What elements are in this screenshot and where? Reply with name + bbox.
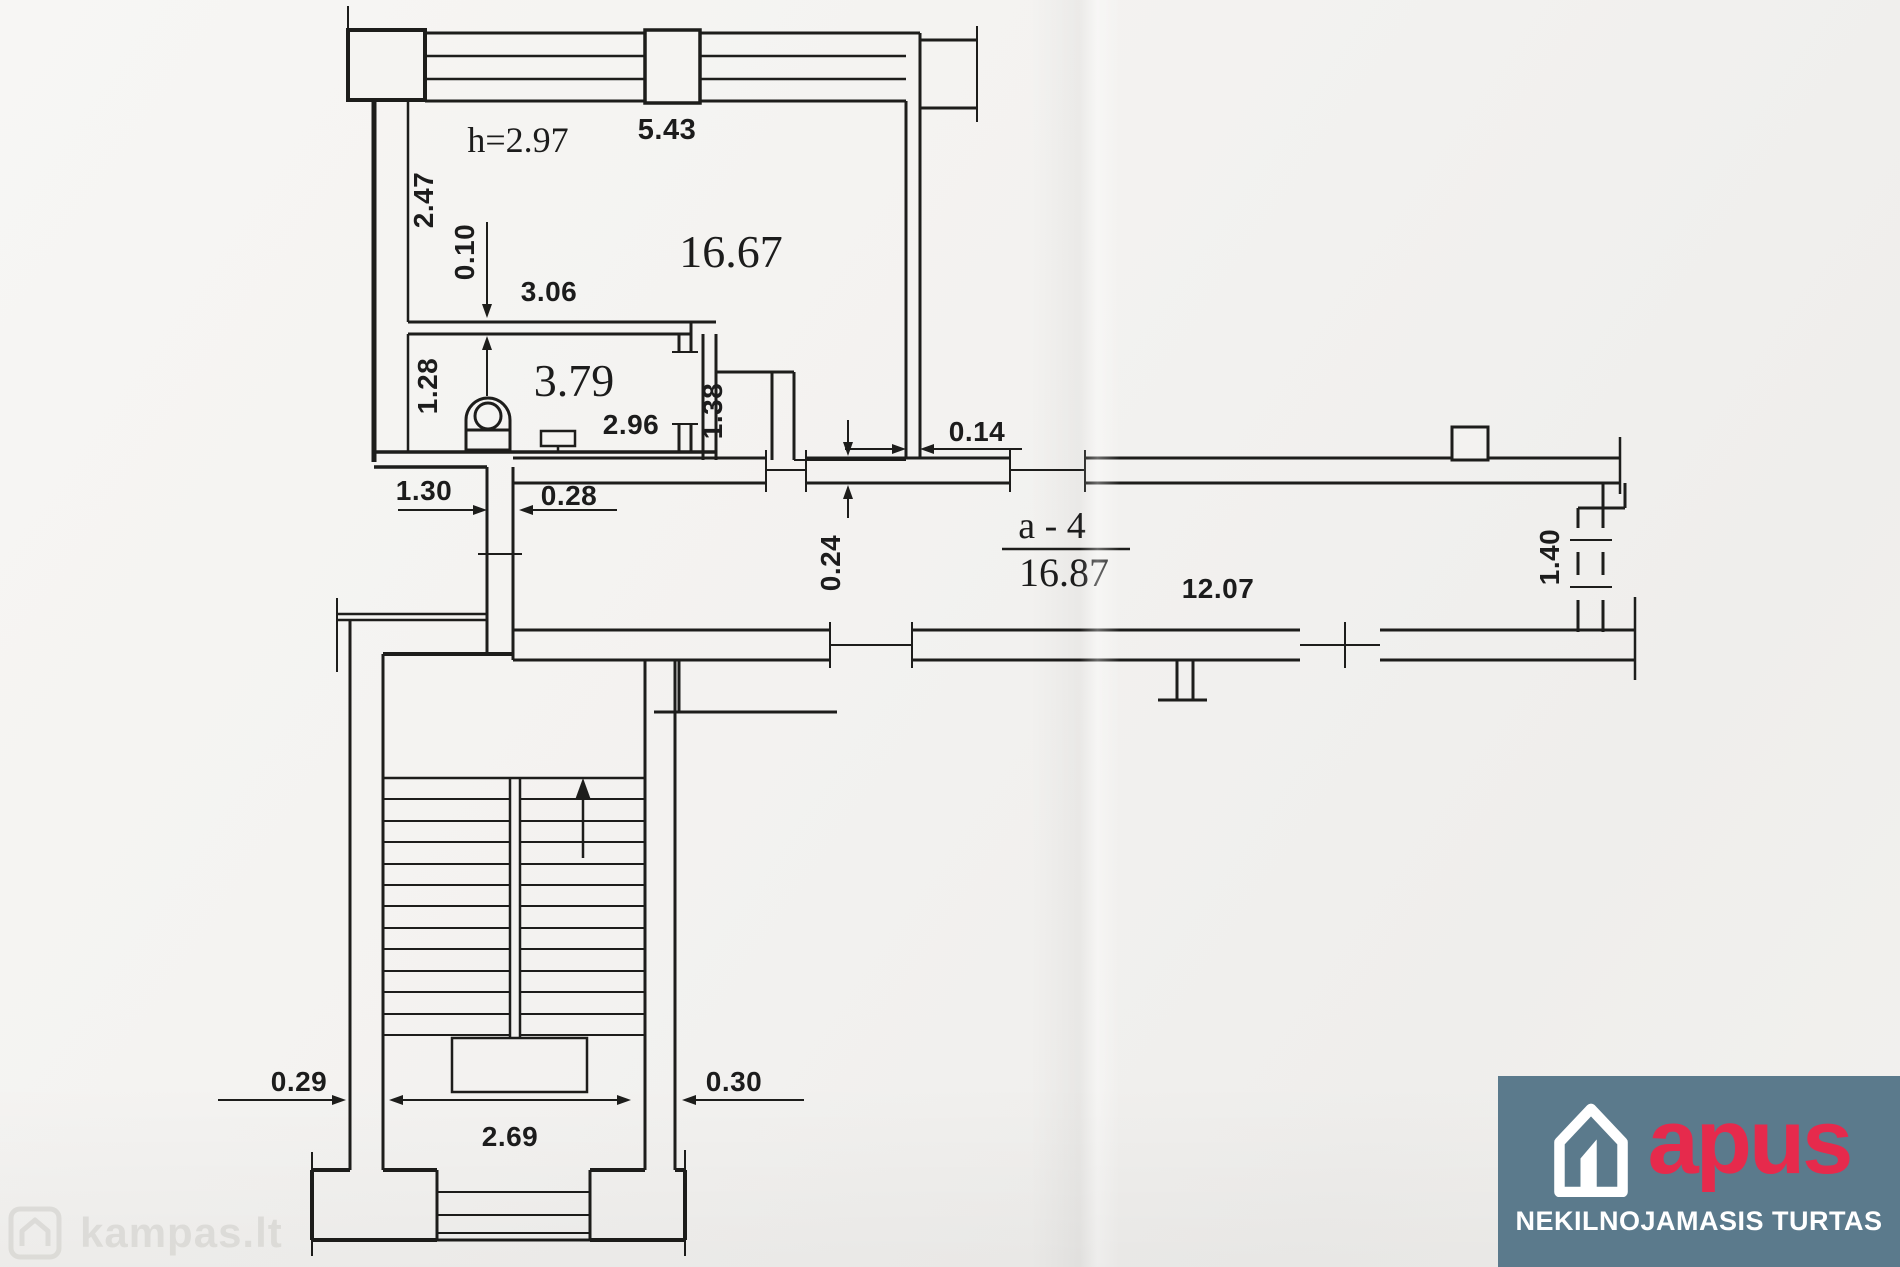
dim-wall-thickness-right: 0.14 <box>949 416 1006 447</box>
dim-stair-wall-left: 0.29 <box>271 1066 328 1097</box>
dim-room-left: 2.47 <box>408 172 439 229</box>
wc-room-area: 3.79 <box>534 355 615 406</box>
dim-corridor-end-door: 1.40 <box>1534 529 1565 586</box>
corridor-bottom-wall <box>513 597 1635 712</box>
entrance-vestibule <box>312 1150 685 1256</box>
stairs <box>383 778 645 1092</box>
logo-tagline: NEKILNOJAMASIS TURTAS <box>1515 1206 1882 1237</box>
sink-icon <box>541 431 575 452</box>
house-icon <box>1548 1099 1634 1197</box>
main-room-area: 16.67 <box>679 226 783 277</box>
corridor-right-end <box>1570 483 1625 632</box>
toilet-icon <box>466 398 510 450</box>
dim-stair-inner-width: 2.69 <box>482 1121 539 1152</box>
dim-stair-wall-right: 0.30 <box>706 1066 763 1097</box>
dim-corridor-length: 12.07 <box>1182 573 1255 604</box>
kampas-logo-icon <box>8 1206 62 1260</box>
wall-notch <box>1452 427 1488 460</box>
watermark: kampas.lt <box>8 1206 283 1260</box>
agency-logo: apus NEKILNOJAMASIS TURTAS <box>1498 1076 1900 1267</box>
corridor-designation: a - 4 <box>1018 505 1086 547</box>
dim-wc-width: 2.96 <box>603 409 660 440</box>
corridor-area: 16.87 <box>1019 550 1109 595</box>
stairs-up-arrow-icon <box>575 778 591 858</box>
dim-corridor-wall-thickness: 0.24 <box>815 535 846 592</box>
dim-door-left: 1.30 <box>396 475 453 506</box>
dim-partition-length: 3.06 <box>521 276 578 307</box>
window-band <box>348 6 920 103</box>
dim-niche-right: 1.38 <box>697 383 728 440</box>
labels: h=2.97 5.43 16.67 2.47 0.10 3.06 1.28 3.… <box>271 114 1565 1152</box>
dim-door-wall: 0.28 <box>541 480 598 511</box>
dim-window-top: 5.43 <box>638 114 696 146</box>
logo-brand-text: apus <box>1648 1096 1851 1188</box>
watermark-text: kampas.lt <box>80 1209 283 1257</box>
floorplan-scan: h=2.97 5.43 16.67 2.47 0.10 3.06 1.28 3.… <box>0 0 1900 1267</box>
window-mullion <box>645 30 700 103</box>
dim-partition-thickness: 0.10 <box>449 224 480 281</box>
dim-wc-left: 1.28 <box>412 358 443 415</box>
stair-landing <box>452 1038 587 1092</box>
main-room-height-note: h=2.97 <box>467 120 568 160</box>
